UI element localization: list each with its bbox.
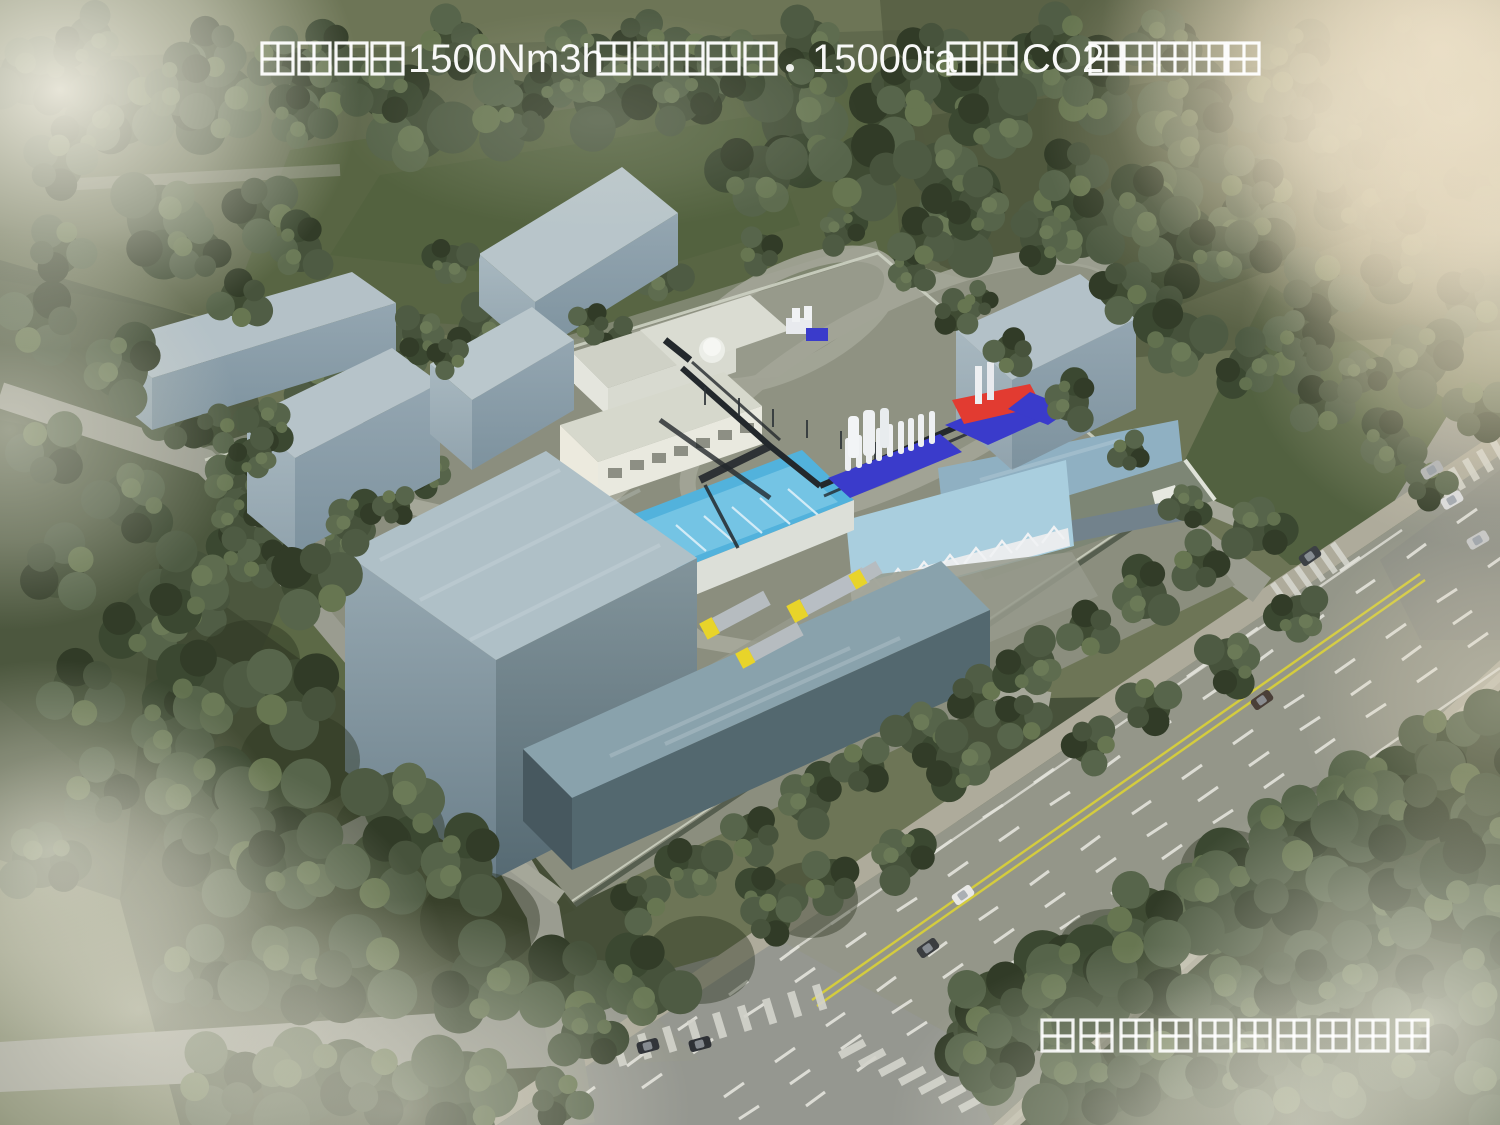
svg-text:1500Nm3h: 1500Nm3h bbox=[408, 37, 604, 81]
svg-text:15000ta: 15000ta bbox=[812, 37, 957, 81]
